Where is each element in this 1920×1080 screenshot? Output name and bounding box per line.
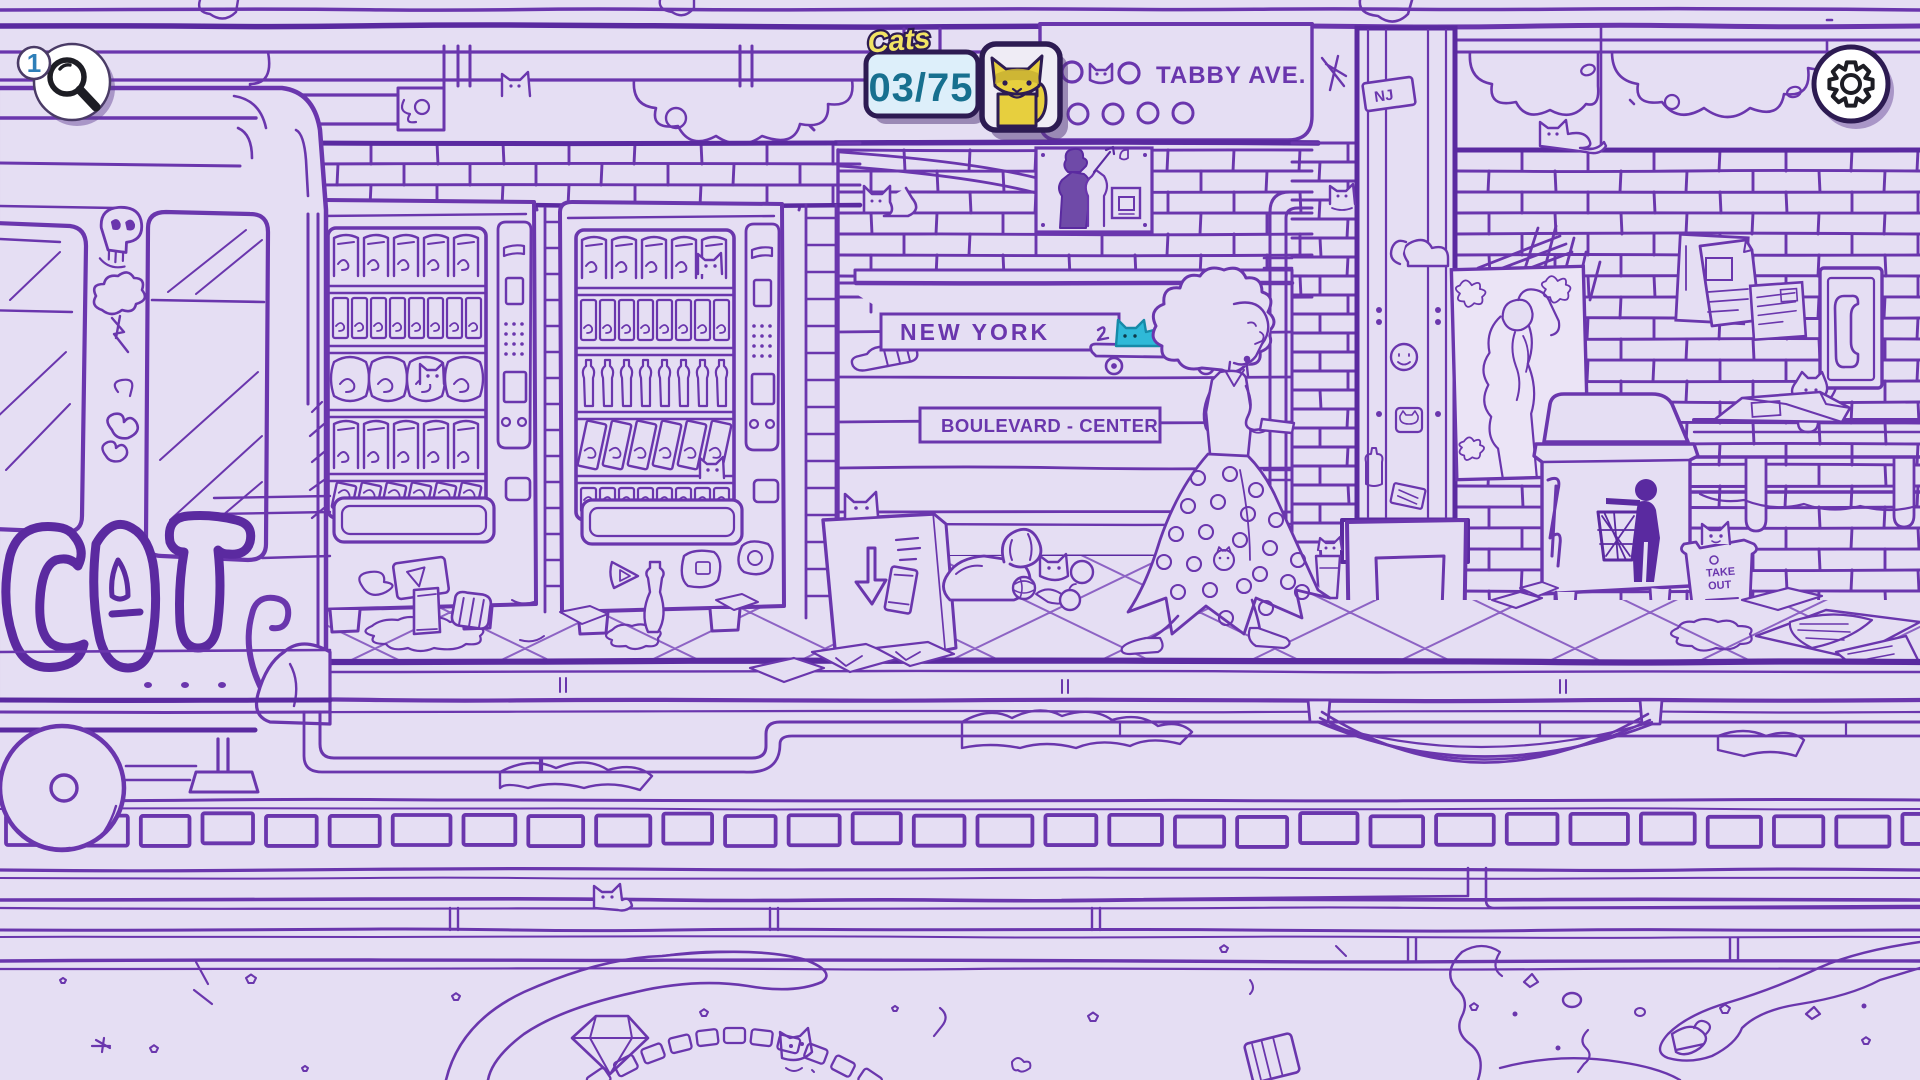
svg-text:BOULEVARD - CENTER: BOULEVARD - CENTER (941, 415, 1158, 436)
svg-text:TABBY AVE.: TABBY AVE. (1156, 62, 1306, 89)
svg-text:TAKE: TAKE (1706, 566, 1736, 580)
svg-text:NEW YORK: NEW YORK (900, 319, 1050, 345)
svg-text:1: 1 (27, 48, 41, 78)
svg-text:Cats: Cats (866, 22, 931, 59)
svg-text:OUT: OUT (1708, 579, 1732, 593)
svg-text:03/75: 03/75 (868, 66, 973, 110)
svg-text:NJ: NJ (1373, 86, 1394, 106)
